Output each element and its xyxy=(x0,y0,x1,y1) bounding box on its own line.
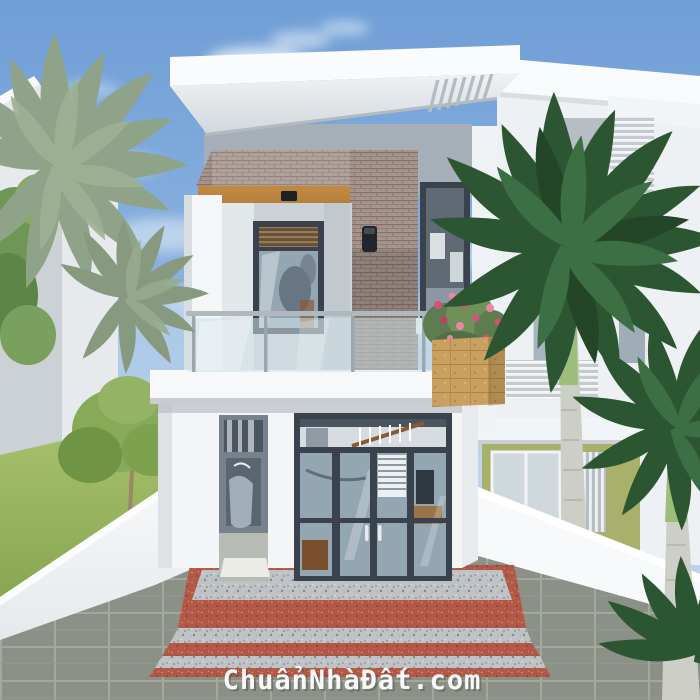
porch-steps xyxy=(149,565,551,677)
ceiling-light xyxy=(281,191,297,201)
picture-frame-2 xyxy=(450,252,463,282)
house-render: ChuẩnNhàĐất.com ChuẩnNhàĐất.com xyxy=(0,0,700,700)
watermark-text: ChuẩnNhàĐất.com xyxy=(223,665,482,696)
balcony-railing xyxy=(186,311,436,372)
door-mat xyxy=(220,558,270,577)
interior-furniture xyxy=(302,540,328,570)
facade-side-return xyxy=(462,388,478,568)
handrail xyxy=(186,311,436,316)
step-riser-2 xyxy=(162,643,540,656)
balcony-window xyxy=(253,221,324,334)
balcony-window-blind xyxy=(259,227,318,247)
entry-door xyxy=(294,413,452,581)
step-tread-1 xyxy=(170,628,532,643)
picture-frame xyxy=(430,233,445,259)
render-canvas: ChuẩnNhàĐất.com ChuẩnNhàĐất.com xyxy=(0,0,700,700)
side-window xyxy=(219,415,268,581)
interior-tv xyxy=(416,470,434,504)
door-transom xyxy=(300,419,446,447)
wall-sconce-lamp xyxy=(362,226,377,252)
